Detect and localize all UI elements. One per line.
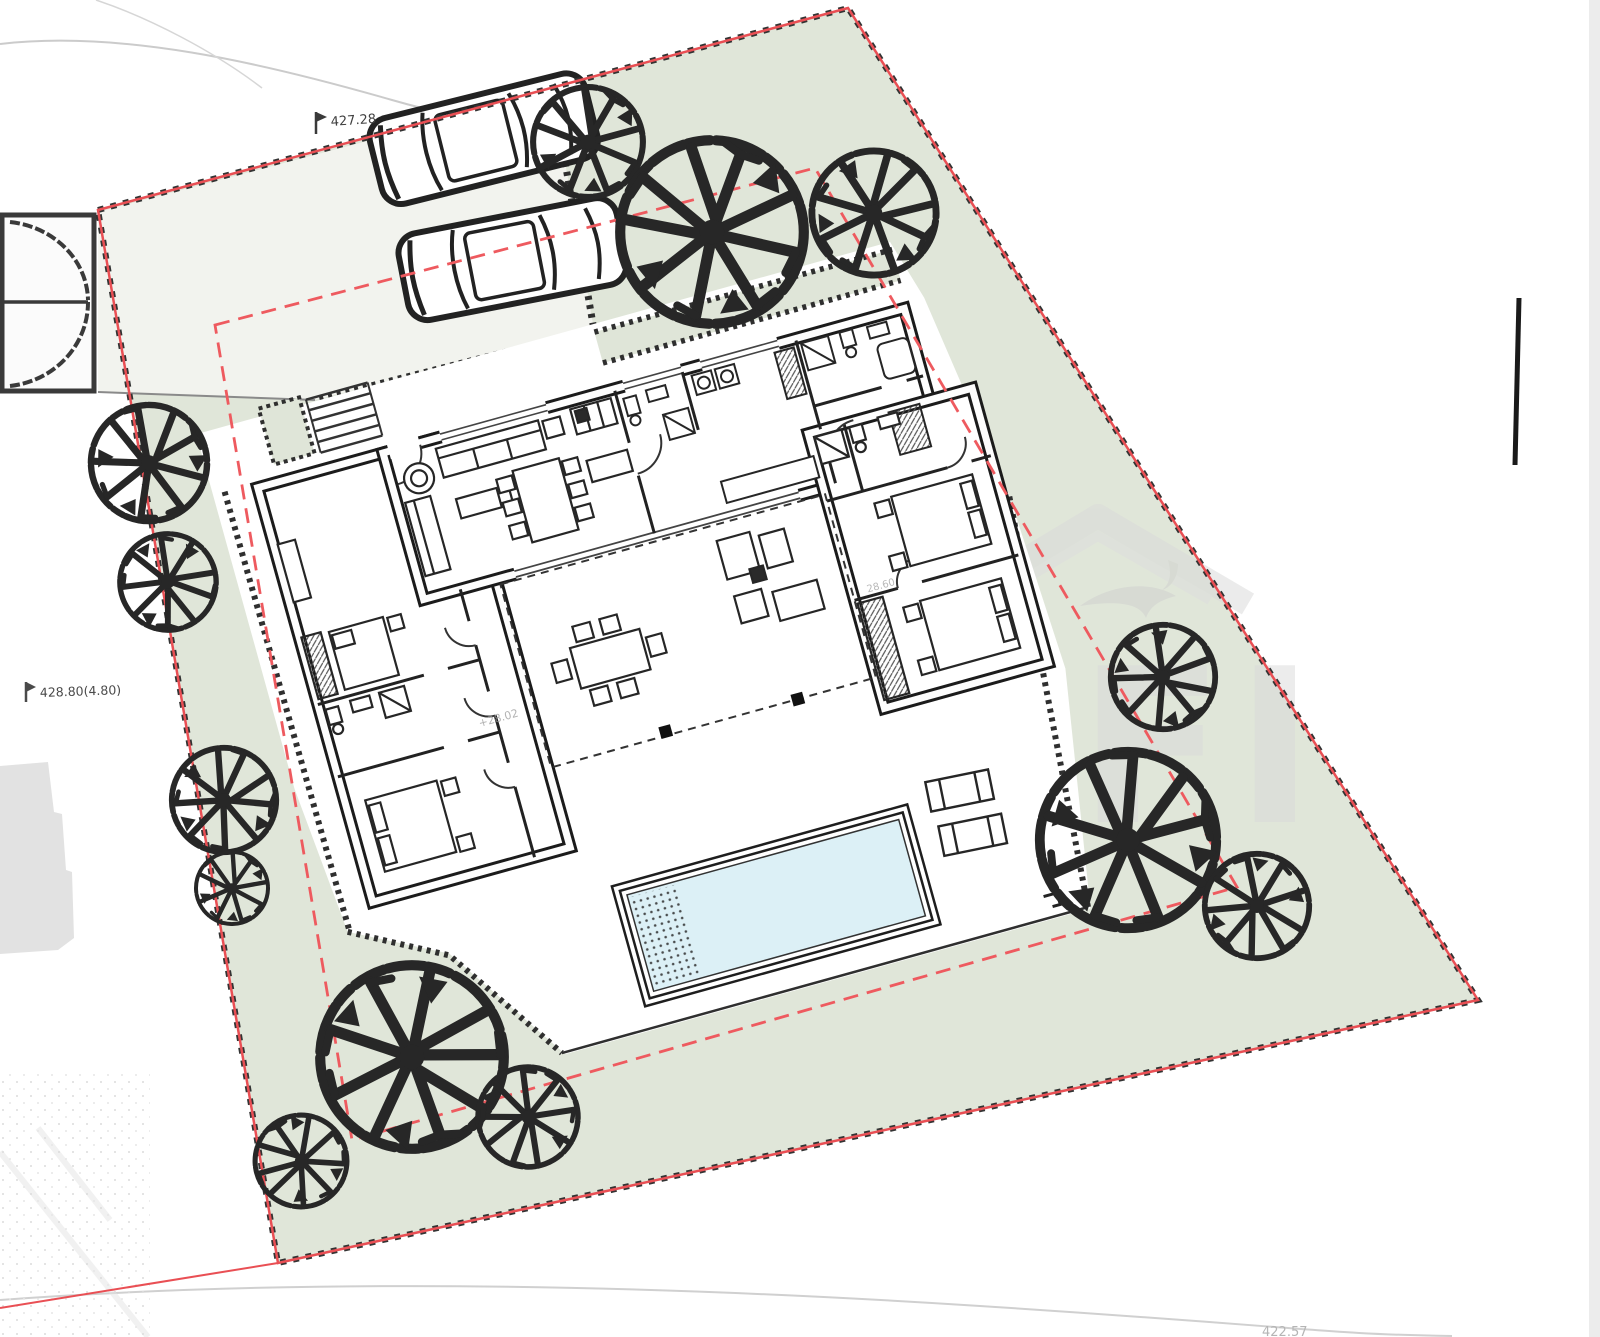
entrance-gate [2, 215, 94, 391]
sheet-edge-strip [1589, 0, 1600, 1337]
boundary-post-mark [1515, 298, 1519, 465]
elevation-left-marker: 428.80(4.80) [26, 682, 121, 702]
elevation-bottom-right-label: 422.57 [1262, 1325, 1308, 1337]
neighbour-building [0, 762, 74, 954]
elevation-top-label: 427.28 [330, 112, 376, 130]
ground-texture [0, 1070, 150, 1337]
elevation-left-label: 428.80(4.80) [40, 682, 122, 700]
site-plan-drawing: FI [0, 0, 1600, 1337]
site-plan-sheet: FI [0, 0, 1600, 1337]
